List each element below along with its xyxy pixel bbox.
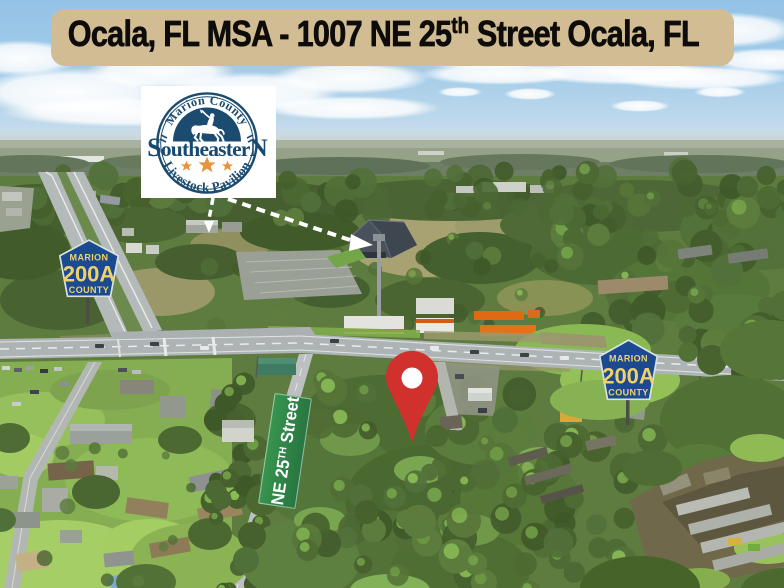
svg-text:200A: 200A <box>602 364 655 389</box>
svg-text:200A: 200A <box>63 262 116 287</box>
svg-text:COUNTY: COUNTY <box>69 285 109 295</box>
svg-text:COUNTY: COUNTY <box>608 388 648 398</box>
svg-text:MARION: MARION <box>609 354 648 364</box>
